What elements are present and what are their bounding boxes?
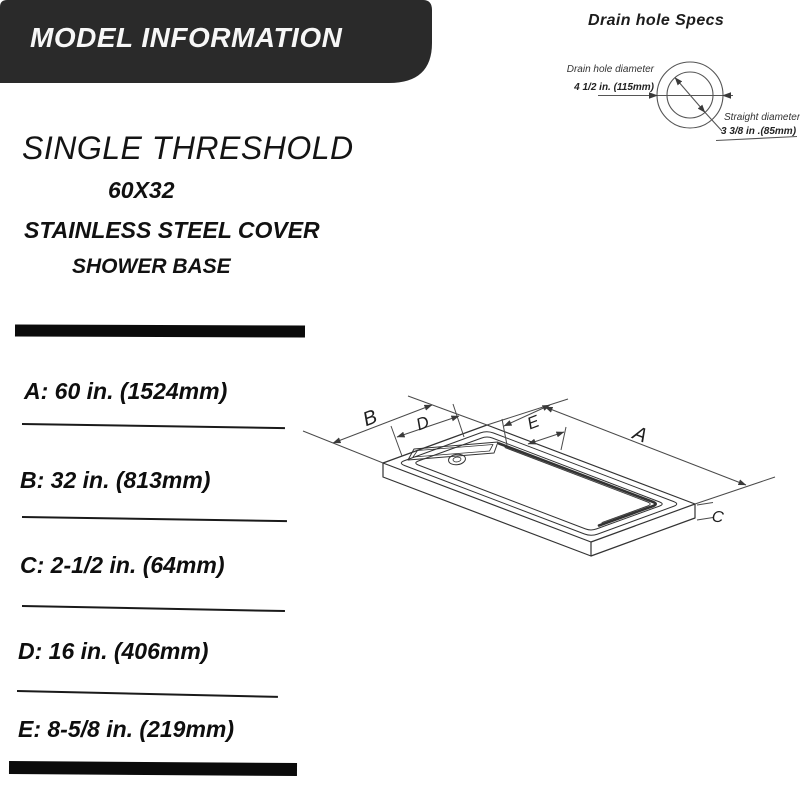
top-black-bar — [15, 324, 305, 337]
bottom-black-bar — [9, 761, 297, 776]
label-A: A — [629, 422, 650, 448]
hole-diameter-value: 4 1/2 in. (115mm) — [538, 82, 654, 93]
base-top-face — [383, 425, 695, 542]
page-title: MODEL INFORMATION — [30, 22, 342, 54]
witness-line — [453, 404, 464, 437]
dimension-item-C: C: 2-1/2 in. (64mm) — [20, 552, 225, 579]
dimension-item-D: D: 16 in. (406mm) — [18, 638, 208, 665]
shower-base-drawing — [383, 425, 695, 556]
product-size: 60X32 — [108, 177, 175, 204]
value-underline — [716, 137, 797, 141]
drain-specs-title: Drain hole Specs — [588, 12, 724, 30]
label-D: D — [414, 412, 432, 434]
dimension-item-E: E: 8-5/8 in. (219mm) — [18, 716, 234, 743]
dimension-item-A: A: 60 in. (1524mm) — [24, 378, 227, 405]
dimension-item-B: B: 32 in. (813mm) — [20, 467, 210, 494]
product-subtitle-base: SHOWER BASE — [72, 255, 231, 279]
hole-diameter-label: Drain hole diameter — [538, 64, 654, 75]
label-E: E — [525, 411, 543, 433]
straight-diameter-label: Straight diameter — [724, 112, 800, 123]
spec-sheet-page: B D E A C MODEL INFORMATION Drain hole S… — [0, 0, 800, 800]
leader-line — [705, 112, 722, 131]
straight-diameter-value: 3 3/8 in .(85mm) — [721, 126, 796, 137]
label-B: B — [360, 406, 380, 431]
product-title: SINGLE THRESHOLD — [22, 130, 354, 167]
witness-line — [303, 431, 383, 463]
label-C: C — [711, 508, 725, 527]
dim-ticks-C — [697, 503, 713, 521]
witness-line — [561, 427, 566, 450]
product-subtitle-cover: STAINLESS STEEL COVER — [24, 217, 320, 244]
dim-line-E2 — [528, 432, 564, 444]
witness-line — [391, 426, 402, 456]
